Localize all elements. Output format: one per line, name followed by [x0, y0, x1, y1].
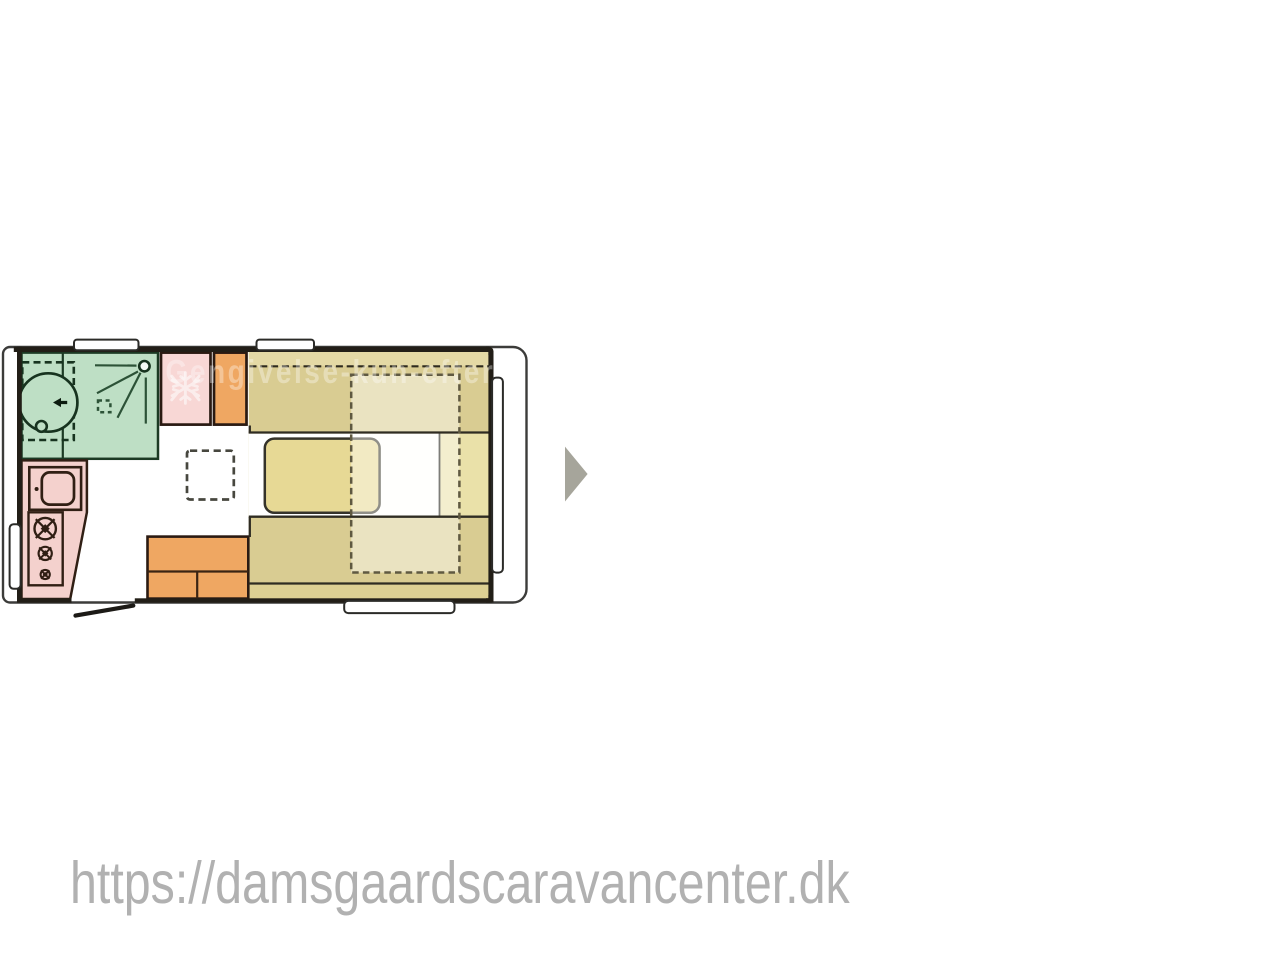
svg-text:Gengivelse-kun-efter: Gengivelse-kun-efter — [166, 354, 496, 391]
svg-text:https://damsgaardscaravancente: https://damsgaardscaravancenter.dk — [70, 851, 851, 917]
